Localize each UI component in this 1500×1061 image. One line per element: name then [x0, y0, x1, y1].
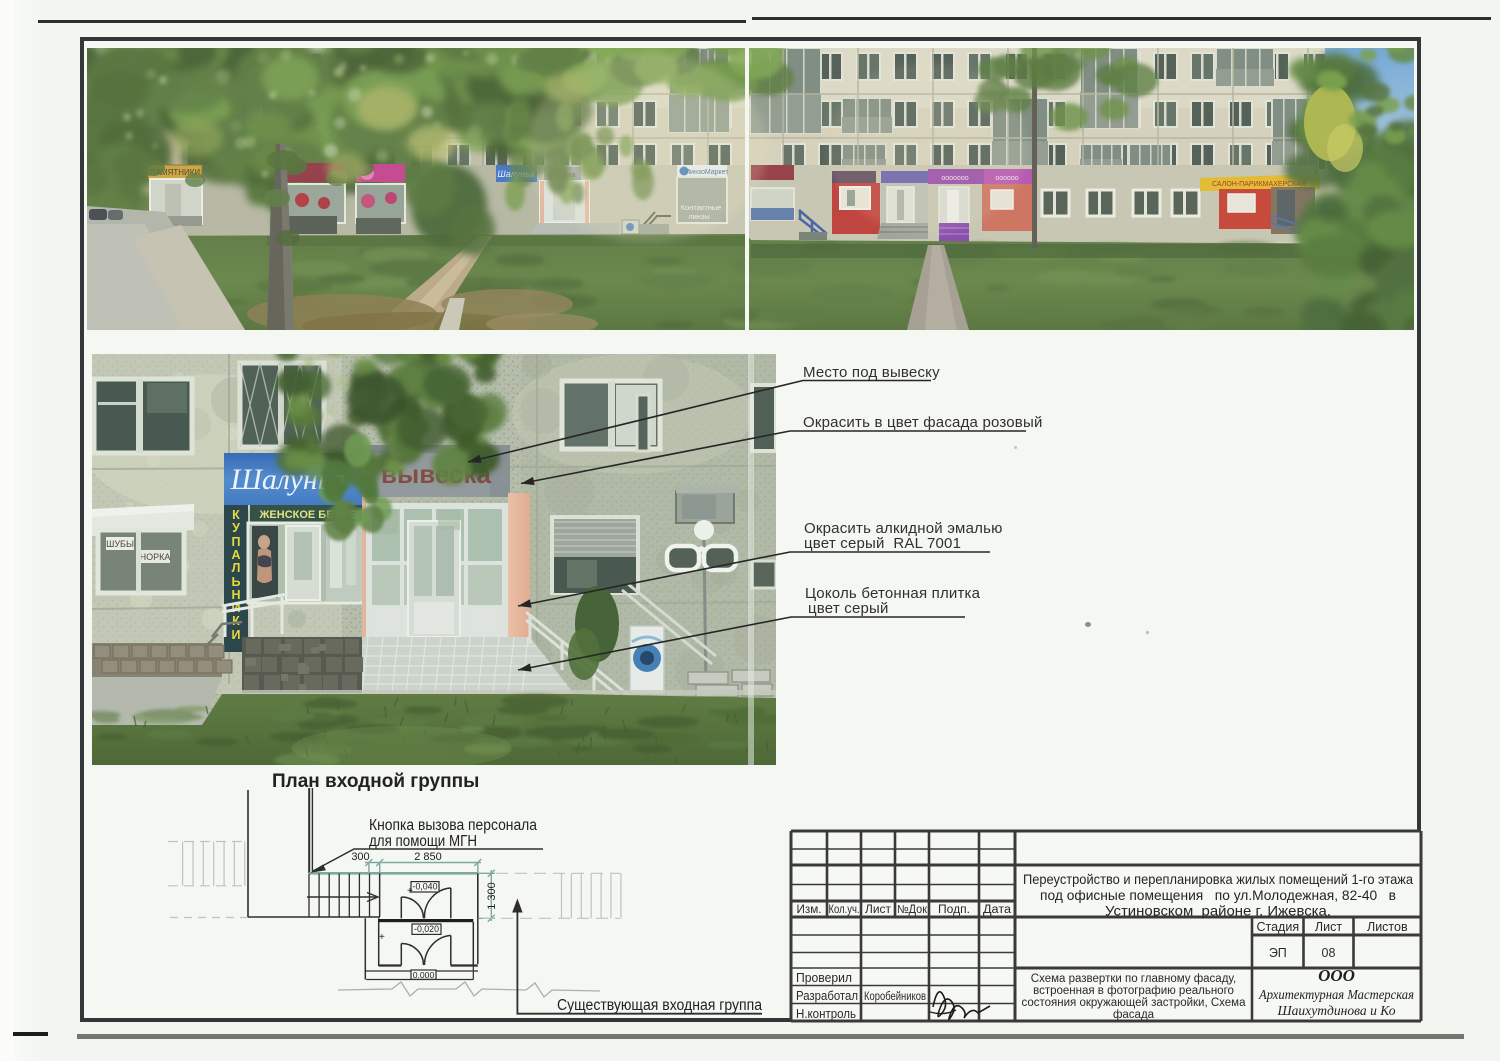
- svg-text:Кол.уч.: Кол.уч.: [829, 904, 860, 916]
- svg-text:Переустройство и перепланировк: Переустройство и перепланировка жилых по…: [1023, 871, 1413, 887]
- svg-text:0.000: 0.000: [413, 970, 435, 980]
- svg-text:Кнопка вызова персонала: Кнопка вызова персонала: [369, 817, 537, 834]
- svg-text:№Док: №Док: [897, 904, 928, 916]
- svg-text:встроенная в фотографию реальн: встроенная в фотографию реального: [1033, 985, 1234, 997]
- svg-text:2 850: 2 850: [414, 851, 442, 863]
- svg-text:08: 08: [1322, 946, 1336, 960]
- svg-text:Листов: Листов: [1367, 920, 1408, 934]
- svg-text:Стадия: Стадия: [1256, 920, 1299, 934]
- svg-text:+: +: [407, 886, 413, 897]
- svg-text:фасада: фасада: [1113, 1009, 1155, 1021]
- svg-text:Устиновском районе г. Ижевска: Устиновском районе г. Ижевска.: [1105, 903, 1331, 919]
- svg-text:Дата: Дата: [983, 904, 1012, 916]
- svg-text:1 300: 1 300: [486, 882, 498, 910]
- svg-text:под офисные помещения по ул.: под офисные помещения по ул.Молодежная, …: [1040, 887, 1396, 903]
- svg-text:План входной группы: План входной группы: [272, 771, 479, 792]
- svg-text:ЭП: ЭП: [1269, 946, 1287, 960]
- svg-text:300: 300: [351, 851, 369, 863]
- svg-text:Существующая входная группа: Существующая входная группа: [557, 997, 762, 1014]
- svg-text:+: +: [379, 932, 385, 943]
- svg-text:Лист: Лист: [865, 904, 892, 916]
- svg-text:Шаихутдинова и Ко: Шаихутдинова и Ко: [1276, 1003, 1395, 1018]
- svg-text:Коробейников: Коробейников: [864, 989, 926, 1003]
- svg-text:-0,040: -0,040: [413, 882, 438, 892]
- svg-text:состояния окружающей застройки: состояния окружающей застройки, Схема: [1022, 997, 1247, 1009]
- svg-text:Архитектурная Мастерская: Архитектурная Мастерская: [1258, 987, 1414, 1002]
- svg-text:-0,020: -0,020: [414, 924, 439, 934]
- svg-text:Лист: Лист: [1315, 920, 1342, 934]
- svg-text:Н.контроль: Н.контроль: [796, 1006, 856, 1021]
- svg-text:Изм.: Изм.: [797, 904, 822, 916]
- svg-text:Разработал: Разработал: [796, 988, 858, 1003]
- svg-text:ООО: ООО: [1318, 966, 1355, 985]
- svg-text:Схема развертки по главному ф: Схема развертки по главному фасаду,: [1031, 973, 1236, 985]
- svg-text:для помощи МГН: для помощи МГН: [369, 833, 477, 850]
- svg-text:Подп.: Подп.: [938, 904, 970, 916]
- svg-text:Проверил: Проверил: [796, 970, 852, 985]
